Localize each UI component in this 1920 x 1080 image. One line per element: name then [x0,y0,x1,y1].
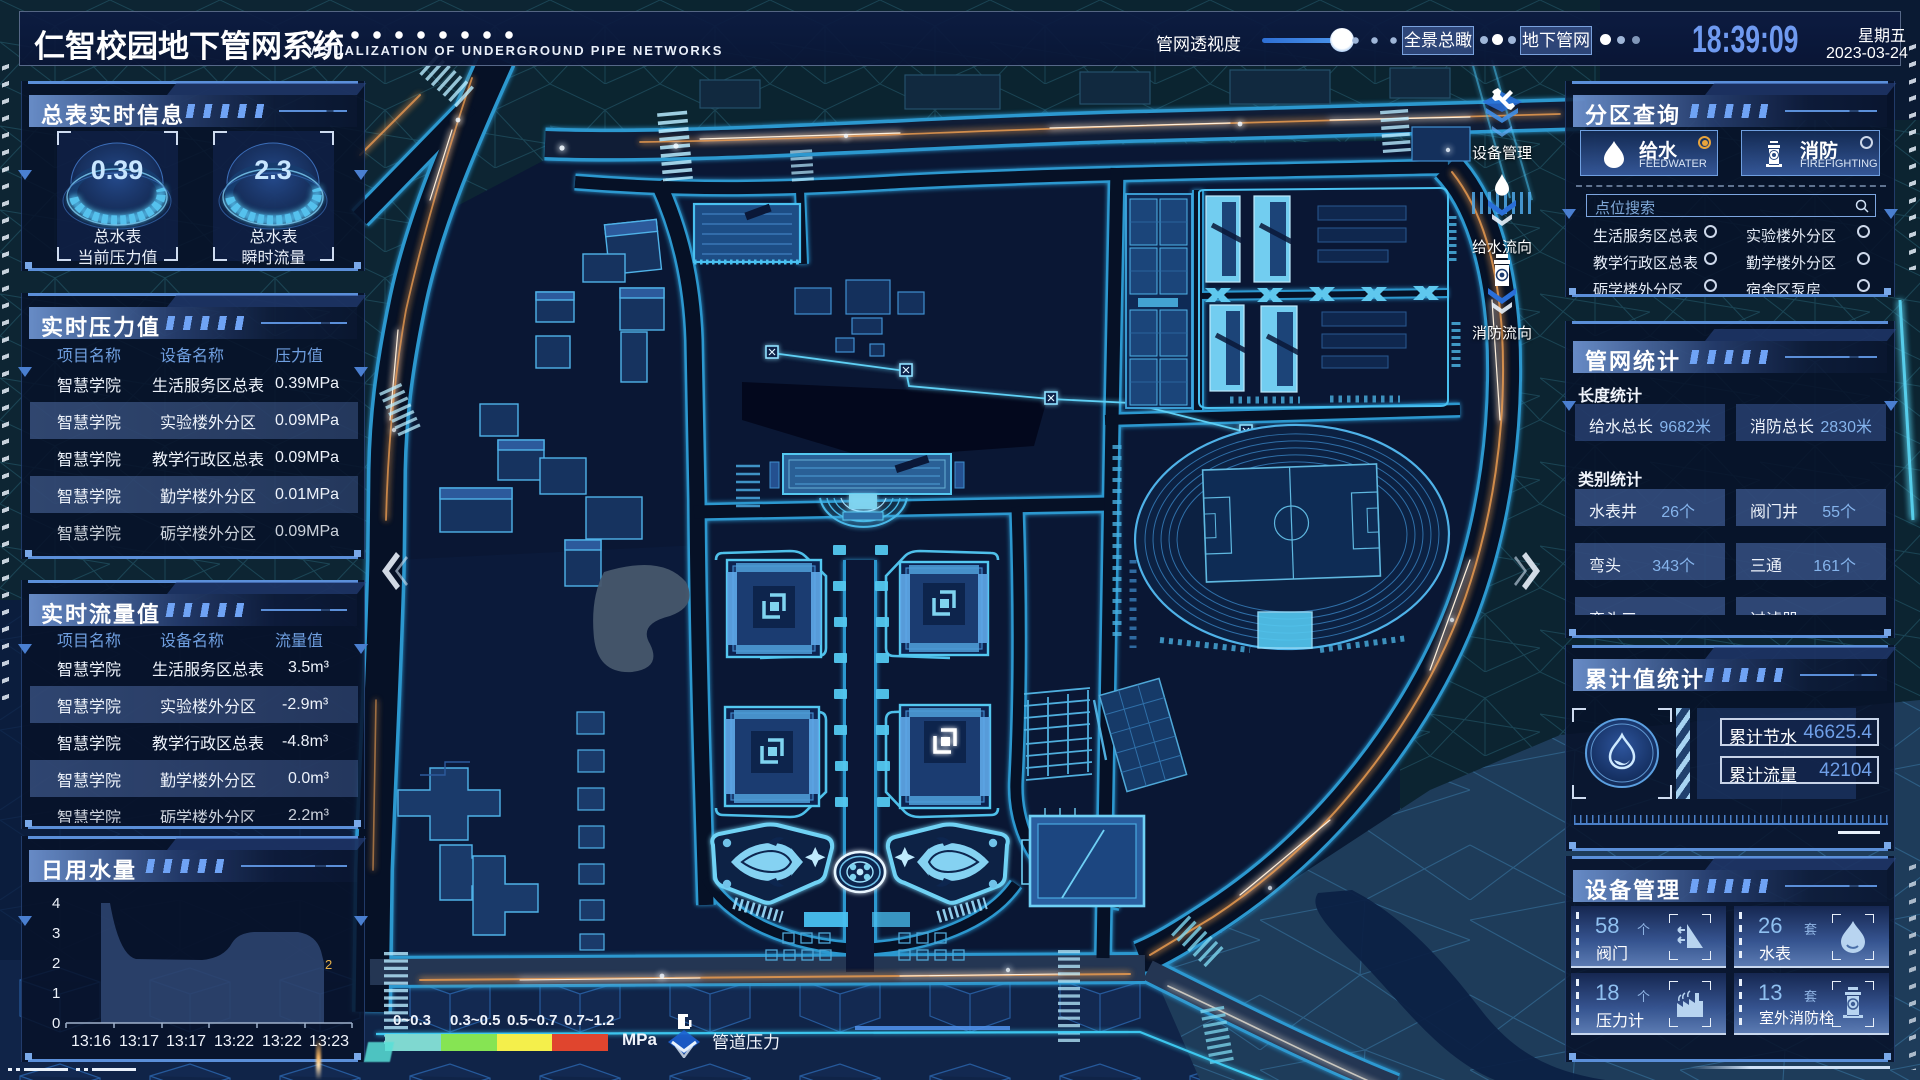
svg-text:2: 2 [52,955,60,972]
svg-text:0.39: 0.39 [91,155,144,185]
svg-text:2: 2 [325,957,332,972]
svg-text:0: 0 [52,1015,60,1032]
svg-text:1: 1 [52,985,60,1002]
svg-text:13:22: 13:22 [262,1033,302,1050]
svg-text:13:17: 13:17 [166,1033,206,1050]
svg-text:13:22: 13:22 [214,1033,254,1050]
svg-text:4: 4 [52,895,60,912]
svg-text:2.3: 2.3 [254,155,292,185]
svg-text:13:17: 13:17 [119,1033,159,1050]
svg-text:13:16: 13:16 [71,1033,111,1050]
svg-text:3: 3 [52,925,60,942]
